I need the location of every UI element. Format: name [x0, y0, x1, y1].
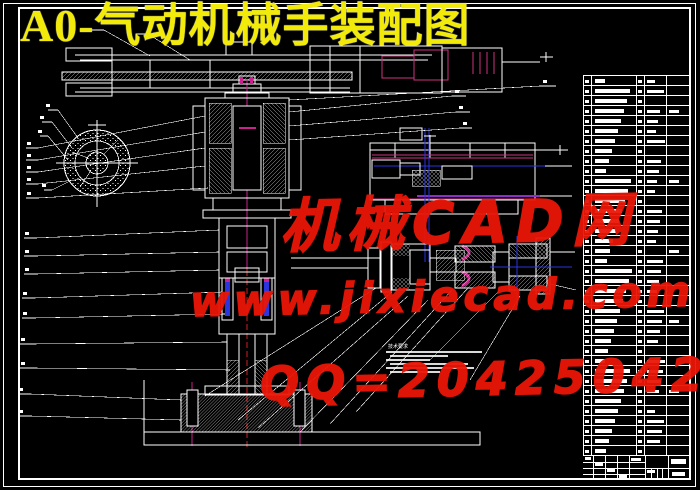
watermark-site-name: 机械CAD网 [279, 172, 638, 263]
cad-viewport: A0-气动机械手装配图 技术要求 机械CAD网 www.jixiecad.com… [0, 0, 700, 490]
watermark-qq: QQ=20425042 [259, 347, 700, 410]
technical-notes-heading: 技术要求 [388, 343, 408, 350]
title-block [583, 455, 690, 480]
drawing-title: A0-气动机械手装配图 [20, 0, 471, 52]
hand-wheel-view [38, 104, 138, 207]
